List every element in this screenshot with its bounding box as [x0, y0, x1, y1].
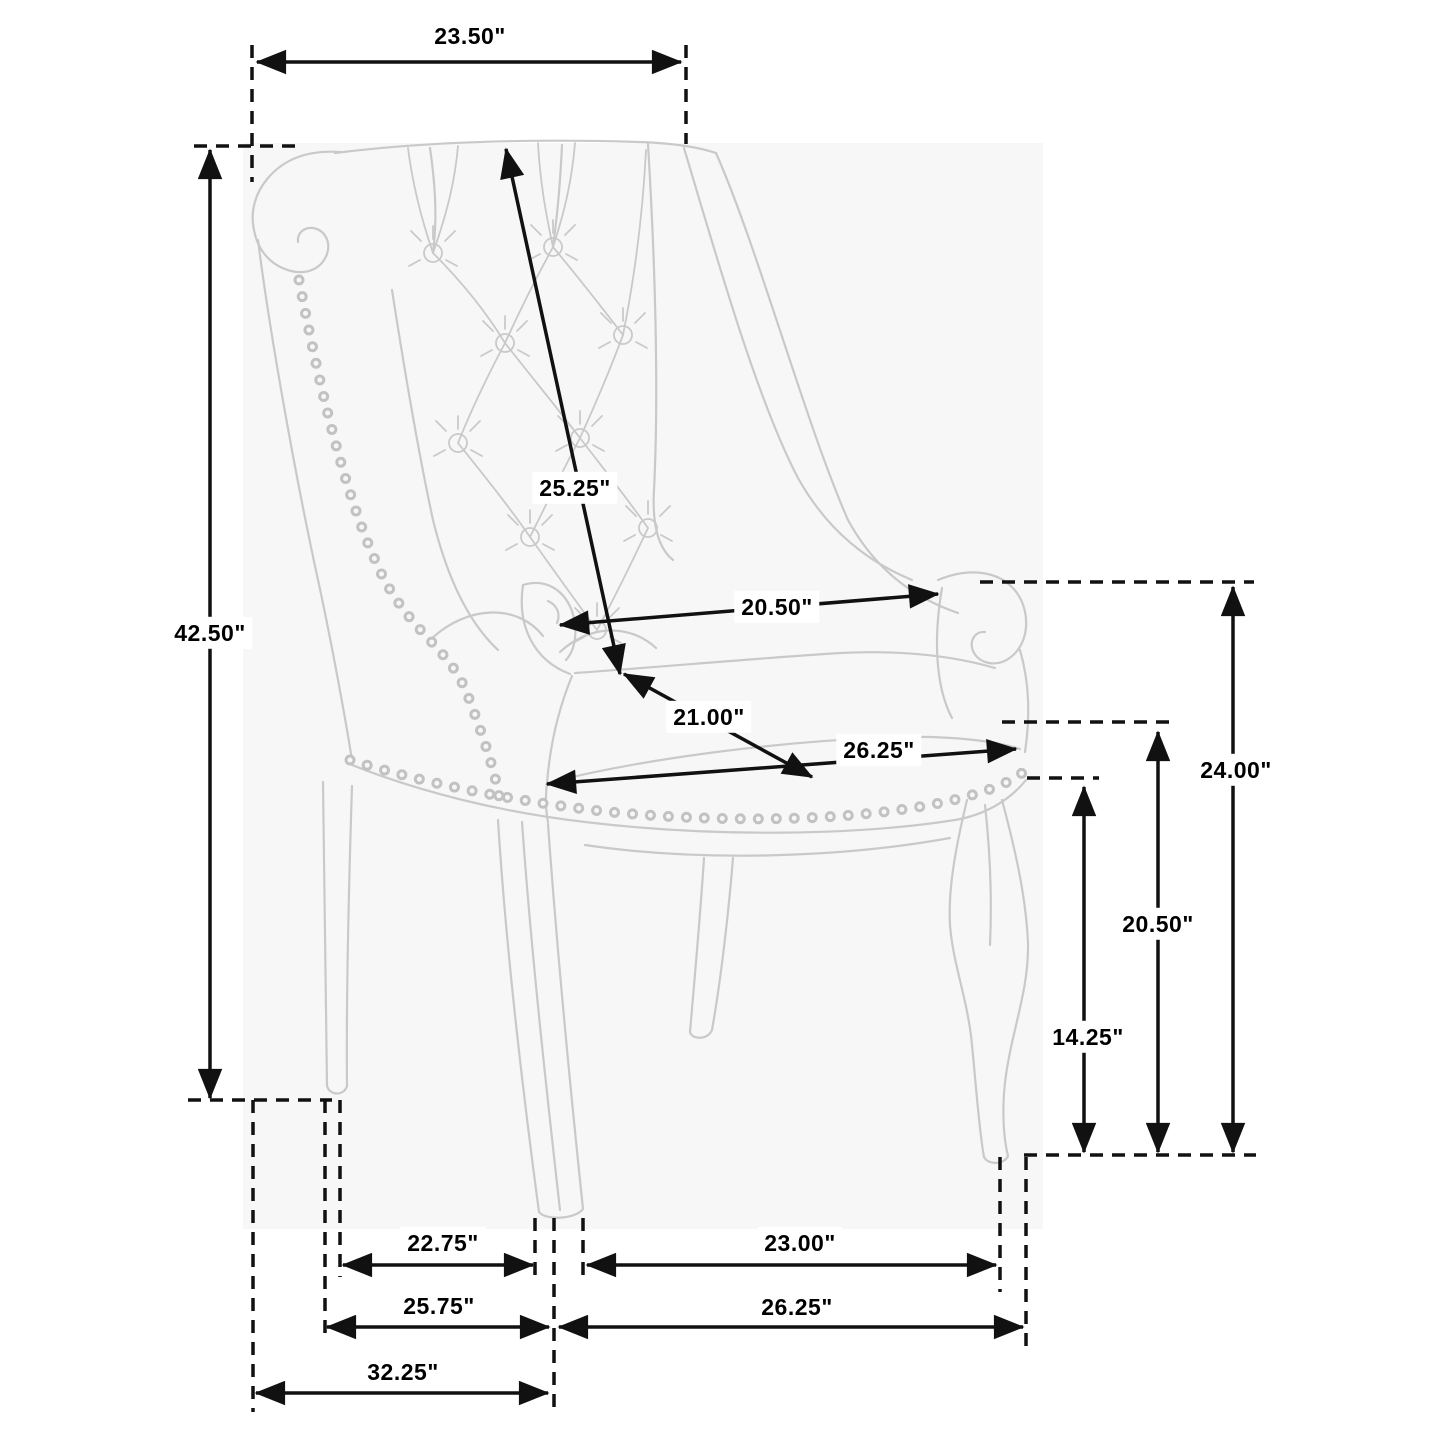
dim-label-footprint-front-left: 22.75" — [400, 1227, 485, 1259]
dim-label-footprint-mid-right: 26.25" — [754, 1291, 839, 1323]
dim-label-footprint-mid-left: 25.75" — [396, 1290, 481, 1322]
dim-label-arm-to-arm: 20.50" — [734, 591, 819, 623]
dimension-diagram: 23.50" 42.50" 25.25" 20.50" 21.00" 26.25… — [0, 0, 1445, 1445]
dim-label-seat-width: 26.25" — [836, 734, 921, 766]
dim-label-seat-diagonal: 21.00" — [666, 701, 751, 733]
dim-label-floor-to-seat-back: 20.50" — [1115, 908, 1200, 940]
dim-label-floor-to-apron: 14.25" — [1045, 1021, 1130, 1053]
dim-label-back-diagonal: 25.25" — [532, 472, 617, 504]
dim-label-top-width: 23.50" — [427, 20, 512, 52]
dim-label-arm-height: 24.00" — [1193, 754, 1278, 786]
dim-label-footprint-front-right: 23.00" — [757, 1227, 842, 1259]
dim-label-overall-height: 42.50" — [167, 617, 252, 649]
dim-label-footprint-overall-left: 32.25" — [360, 1356, 445, 1388]
